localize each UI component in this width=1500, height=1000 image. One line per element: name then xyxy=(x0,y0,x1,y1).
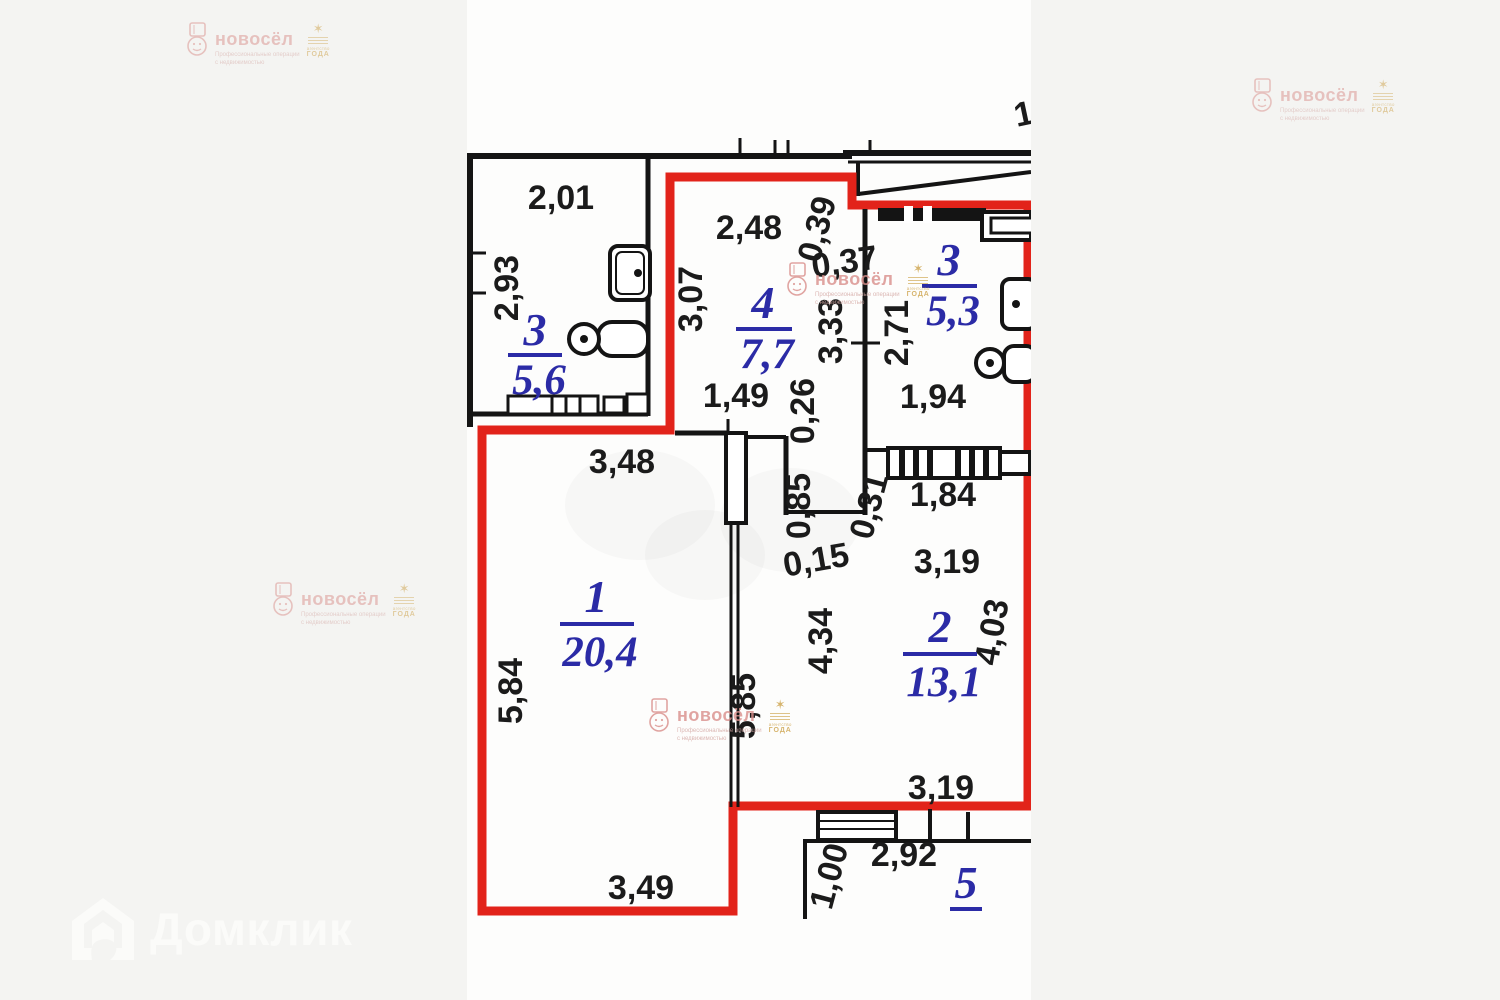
dim-0-85: 0,85 xyxy=(780,473,818,539)
dim-0-26: 0,26 xyxy=(784,378,822,444)
dim-1-94: 1,94 xyxy=(900,378,966,416)
novosel-mascot-icon xyxy=(186,22,210,62)
dim-3-33: 3,33 xyxy=(812,298,850,364)
novosel-tagline-2: с недвижимостью xyxy=(215,60,264,66)
novosel-logo-text: новосёл xyxy=(301,590,386,608)
dim-5-84: 5,84 xyxy=(492,658,530,724)
novosel-watermark: новосёл Профессиональные операции с недв… xyxy=(186,22,336,68)
room-bath-right-number: 3 xyxy=(937,234,961,285)
novosel-tagline-2: с недвижимостью xyxy=(301,620,350,626)
star-icon: ✶ xyxy=(313,22,324,35)
dim-0-31: 0,31 xyxy=(842,469,896,543)
dim-3-19-room2: 3,19 xyxy=(908,769,974,807)
novosel-watermark: новосёл Профессиональные операции с недв… xyxy=(1251,78,1401,124)
novosel-logo-text: новосёл xyxy=(215,30,300,48)
dim-3-49: 3,49 xyxy=(608,869,674,907)
dim-partial-top-right: 1 xyxy=(1011,94,1031,135)
room-2-number: 2 xyxy=(928,601,952,652)
dim-4-34: 4,34 xyxy=(802,608,840,674)
novosel-mascot-icon xyxy=(1251,78,1275,118)
star-icon: ✶ xyxy=(399,582,410,595)
novosel-mascot-icon xyxy=(272,582,296,622)
toilet-icon xyxy=(598,322,648,356)
dim-3-19-corridor: 3,19 xyxy=(914,543,980,581)
dim-2-71: 2,71 xyxy=(878,300,916,366)
room-bath-left-area: 5,6 xyxy=(512,357,566,404)
domclick-house-icon xyxy=(70,896,136,962)
novosel-tagline-1: Профессиональные операции xyxy=(1280,108,1365,114)
novosel-tagline-1: Профессиональные операции xyxy=(215,52,300,58)
room-hall-area: 7,7 xyxy=(740,331,795,378)
dim-1-84: 1,84 xyxy=(910,476,976,514)
listing-photo-page: 2,01 2,48 0,37 1,94 1,49 3,48 1,84 0,15 … xyxy=(0,0,1500,1000)
domclick-logo-text: Домклик xyxy=(150,902,352,956)
floor-plan-drawing: 2,01 2,48 0,37 1,94 1,49 3,48 1,84 0,15 … xyxy=(467,0,1031,1000)
dim-5-85: 5,85 xyxy=(725,673,763,739)
dim-2-01: 2,01 xyxy=(528,179,594,217)
room-2-area: 13,1 xyxy=(906,659,981,706)
dim-3-48: 3,48 xyxy=(589,443,655,481)
novosel-watermark: новосёл Профессиональные операции с недв… xyxy=(272,582,422,628)
star-icon: ✶ xyxy=(1378,78,1389,91)
room-balcony-number: 5 xyxy=(955,857,978,908)
room-hall-number: 4 xyxy=(751,277,775,328)
novosel-logo-text: новосёл xyxy=(1280,86,1365,104)
dim-2-93: 2,93 xyxy=(488,255,526,321)
dim-4-03: 4,03 xyxy=(968,596,1017,668)
novosel-award: ✶ агентство ГОДА xyxy=(393,582,416,618)
door-jamb xyxy=(726,433,746,523)
novosel-tagline-1: Профессиональные операции xyxy=(301,612,386,618)
room-bath-right-area: 5,3 xyxy=(926,288,980,335)
room-bath-left-number: 3 xyxy=(523,304,547,355)
dim-1-49: 1,49 xyxy=(703,377,769,415)
dim-1-00: 1,00 xyxy=(802,839,856,913)
dim-3-07: 3,07 xyxy=(672,266,710,332)
dim-2-92: 2,92 xyxy=(871,836,937,874)
novosel-award: ✶ агентство ГОДА xyxy=(1372,78,1395,114)
room-living-number: 1 xyxy=(585,571,608,622)
novosel-tagline-2: с недвижимостью xyxy=(1280,116,1329,122)
domclick-watermark: Домклик xyxy=(70,896,352,962)
dim-2-48: 2,48 xyxy=(716,209,782,247)
novosel-award: ✶ агентство ГОДА xyxy=(307,22,330,58)
room-living-area: 20,4 xyxy=(561,629,637,676)
